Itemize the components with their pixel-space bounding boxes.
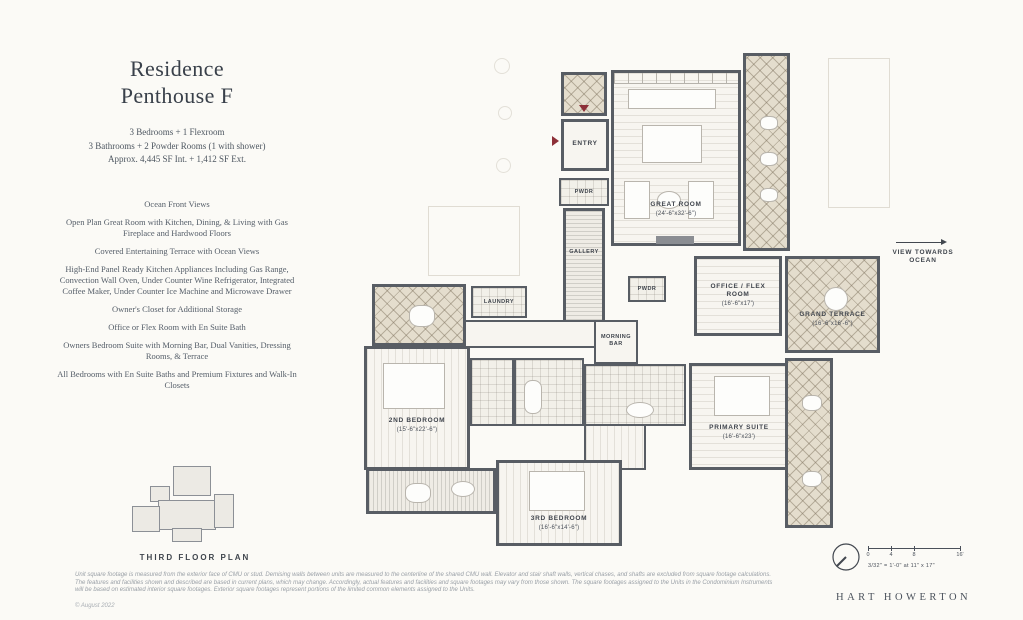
room-second-bedroom-label: 2ND BEDROOM [367,417,467,425]
terrace-second-bedroom [372,284,466,346]
feature-item: Owners Bedroom Suite with Morning Bar, D… [52,340,302,362]
terrace-grand-label: GRAND TERRACE [788,311,877,319]
scale-note: 3/32" = 1'-0" at 11" x 17" [868,563,935,569]
disclaimer-text: Unit square footage is measured from the… [75,572,775,595]
bathtub [626,402,654,418]
room-powder-entry-label: PWDR [561,189,607,196]
stat-square-footage: Approx. 4,445 SF Int. + 1,412 SF Ext. [52,153,302,167]
elevator-arrow-icon [579,105,589,112]
feature-item: Office or Flex Room with En Suite Bath [52,322,302,333]
room-gallery: GALLERY [563,208,605,324]
view-direction-annotation: VIEW TOWARDS OCEAN [890,238,956,265]
page-title: Residence Penthouse F [52,55,302,109]
keyplan-label: THIRD FLOOR PLAN [105,553,285,562]
terrace-grand-dims: (16'-6"x16'-6") [788,320,877,328]
page-title-line2: Penthouse F [52,82,302,109]
feature-item: High-End Panel Ready Kitchen Appliances … [52,264,302,297]
room-entry: ENTRY [561,119,609,171]
room-gallery-label: GALLERY [566,249,602,256]
room-morning-bar-label: MORNING BAR [600,334,632,348]
feature-item: All Bedrooms with En Suite Baths and Pre… [52,369,302,391]
tree-sketch [498,106,512,120]
scale-tick: 8 [912,552,915,558]
room-entry-label: ENTRY [564,140,606,148]
terrace-chair [802,471,822,487]
room-powder-hall-label: PWDR [630,286,664,293]
keyplan-shape [132,506,160,532]
terrace-covered [743,53,790,251]
bed [529,471,585,511]
terrace-grand: GRAND TERRACE (16'-6"x16'-6") [785,256,880,353]
scale-tick: 0 [866,552,869,558]
terrace-chair [760,116,778,130]
room-powder-entry: PWDR [559,178,609,206]
feature-item: Owner's Closet for Additional Storage [52,304,302,315]
tree-sketch [496,158,511,173]
terrace-bottom [366,468,496,514]
stat-bathrooms: 3 Bathrooms + 2 Powder Rooms (1 with sho… [52,140,302,154]
room-third-bedroom: 3RD BEDROOM (16'-6"x14'-6") [496,460,622,546]
room-office-flex-label: OFFICE / FLEX ROOM [707,283,769,299]
room-great-room-dims: (24'-6"x32'-6") [614,210,738,218]
feature-item: Covered Entertaining Terrace with Ocean … [52,246,302,257]
entry-marker-icon [552,136,559,146]
room-elevator-lobby [561,72,607,116]
north-arrow-icon [830,541,862,573]
keyplan-shape [173,466,211,496]
feature-list: Ocean Front Views Open Plan Great Room w… [52,199,302,398]
kitchen-island [628,89,716,109]
terrace-chair [405,483,431,503]
room-primary-suite-dims: (16'-6"x23') [692,433,786,441]
adjacent-structure-outline [428,206,520,276]
terrace-table [824,287,848,311]
keyplan-shape [158,500,216,530]
terrace-chair [802,395,822,411]
brand-logo: HART HOWERTON [836,592,971,603]
room-third-bedroom-label: 3RD BEDROOM [499,515,619,523]
room-primary-bath [584,364,686,426]
unit-stats: 3 Bedrooms + 1 Flexroom 3 Bathrooms + 2 … [52,126,302,167]
terrace-table [451,481,475,497]
keyplan-shape [172,528,202,542]
floorplan: ENTRY PWDR GALLERY GREAT ROOM (24'-6"x32… [356,28,908,580]
room-morning-bar: MORNING BAR [594,320,638,364]
adjacent-structure-outline [828,58,890,208]
bed [714,376,770,416]
room-second-bedroom-dims: (15'-6"x22'-6") [367,426,467,434]
page: { "info_panel": { "title_line1": "Reside… [0,0,1023,620]
dining-table [642,125,702,163]
room-second-bedroom: 2ND BEDROOM (15'-6"x22'-6") [364,346,470,470]
room-bath [470,358,514,426]
bed [383,363,445,409]
room-great-room-label: GREAT ROOM [614,201,738,209]
terrace-chair [760,188,778,202]
fireplace [656,236,694,244]
room-bath [514,358,584,426]
room-great-room: GREAT ROOM (24'-6"x32'-6") [611,70,741,246]
page-title-line1: Residence [52,55,302,82]
keyplan-thumbnail [128,466,263,546]
room-laundry: LAUNDRY [471,286,527,318]
room-office-flex-dims: (16'-6"x17') [707,300,769,308]
terrace-chair [409,305,435,327]
room-primary-suite-label: PRIMARY SUITE [692,424,786,432]
scale-tick: 16' [956,552,963,558]
keyplan-shape [214,494,234,528]
view-direction-arrow-icon [890,238,956,246]
bathtub [524,380,542,414]
room-office-flex: OFFICE / FLEX ROOM (16'-6"x17') [694,256,782,336]
copyright: © August 2022 [75,603,115,609]
stat-bedrooms: 3 Bedrooms + 1 Flexroom [52,126,302,140]
view-direction-label: VIEW TOWARDS OCEAN [890,249,956,265]
feature-item: Ocean Front Views [52,199,302,210]
room-laundry-label: LAUNDRY [473,299,525,306]
scale-tick: 4 [889,552,892,558]
feature-item: Open Plan Great Room with Kitchen, Dinin… [52,217,302,239]
room-powder-hall: PWDR [628,276,666,302]
kitchen-cabinets [614,73,738,84]
room-primary-suite: PRIMARY SUITE (16'-6"x23') [689,363,789,470]
terrace-chair [760,152,778,166]
tree-sketch [494,58,510,74]
scale-bar: 0 4 8 16' [868,546,968,560]
terrace-primary [785,358,833,528]
room-third-bedroom-dims: (16'-6"x14'-6") [499,524,619,532]
